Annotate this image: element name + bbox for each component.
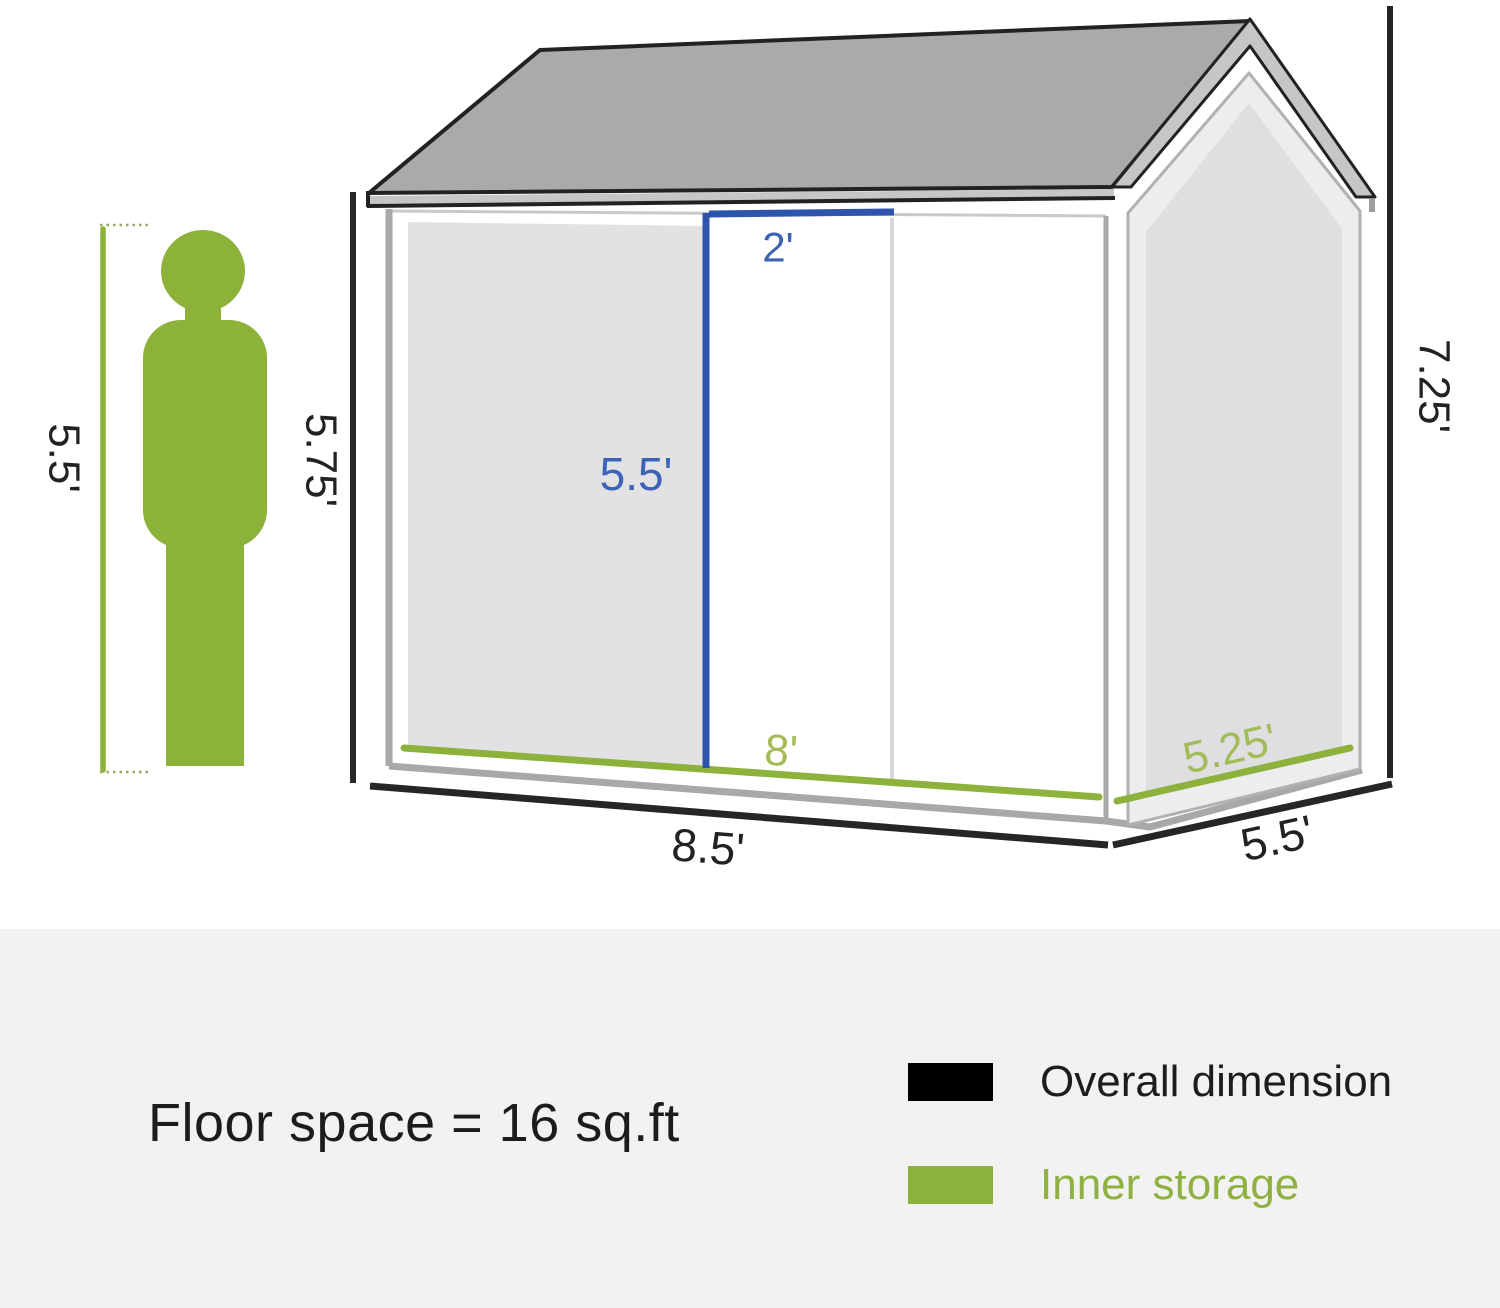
roof-front-slope xyxy=(369,21,1250,193)
front-wall-height-label: 5.75' xyxy=(297,413,346,507)
legend-row-inner-storage: Inner storage xyxy=(908,1160,1299,1210)
door-width-line xyxy=(709,212,894,214)
overall-width-label: 8.5' xyxy=(670,818,747,876)
floor-space-text: Floor space = 16 sq.ft xyxy=(148,1092,680,1154)
product-dimension-page: 5.5' 2' 5.5' 8' xyxy=(0,0,1500,1308)
inner-storage-swatch xyxy=(908,1166,993,1204)
overall-height-label: 7.25' xyxy=(1410,339,1459,433)
person-silhouette-icon xyxy=(143,230,267,766)
overall-dimension-swatch xyxy=(908,1063,993,1101)
person-scale-figure: 5.5' xyxy=(40,225,268,772)
legend-row-overall-dimension: Overall dimension xyxy=(908,1057,1392,1107)
info-panel: Floor space = 16 sq.ft Overall dimension… xyxy=(0,929,1500,1308)
door-width-label: 2' xyxy=(762,224,793,271)
overall-dimension-label: Overall dimension xyxy=(1040,1057,1392,1107)
shed-gable-wall: 5.25' xyxy=(1117,73,1360,825)
person-height-label: 5.5' xyxy=(40,423,89,493)
shed-dimension-diagram: 5.5' 2' 5.5' 8' xyxy=(0,0,1500,930)
door-height-label: 5.5' xyxy=(600,448,673,500)
inner-width-label: 8' xyxy=(763,725,799,776)
inner-storage-label: Inner storage xyxy=(1040,1160,1299,1210)
gable-wall-panel xyxy=(1146,103,1342,798)
